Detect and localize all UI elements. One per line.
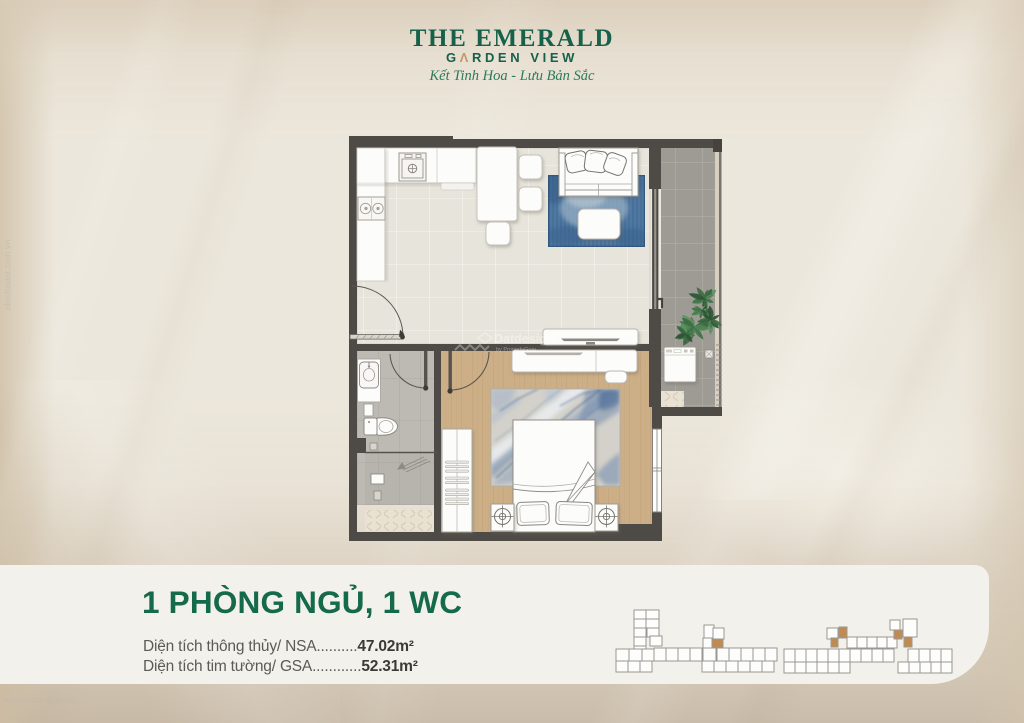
svg-text:by PropertyGuru: by PropertyGuru	[496, 347, 536, 353]
svg-text:Datdesign: Datdesign	[494, 332, 554, 346]
